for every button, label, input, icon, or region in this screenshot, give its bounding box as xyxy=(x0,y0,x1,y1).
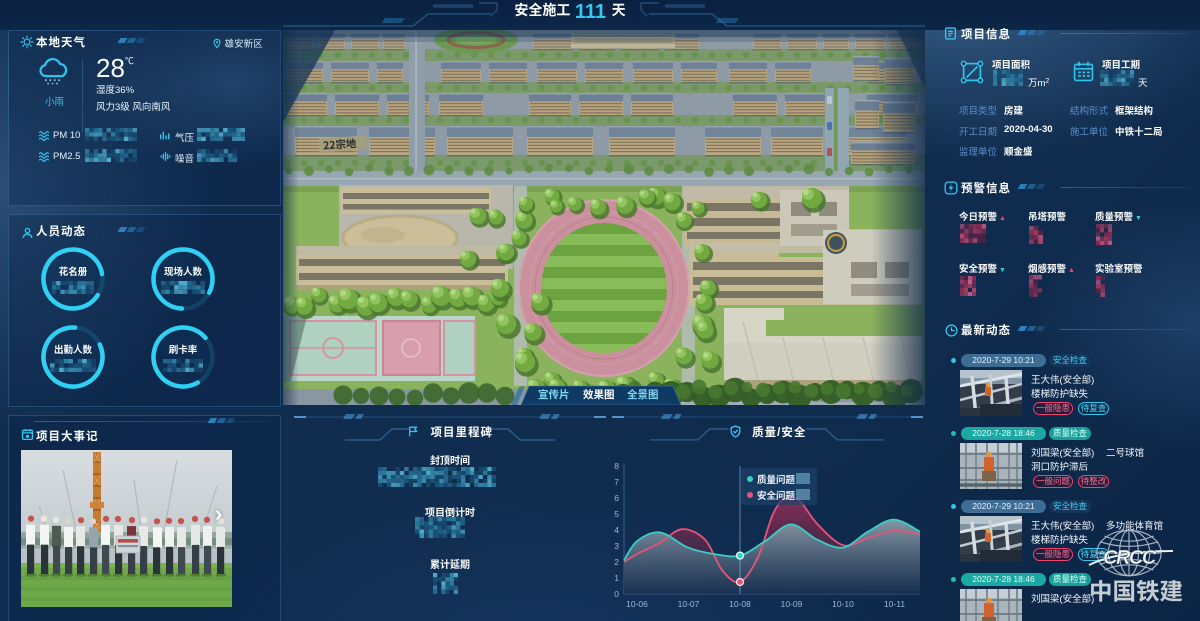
svg-text:4: 4 xyxy=(614,525,619,535)
svg-text:6: 6 xyxy=(614,493,619,503)
svg-text:10-11: 10-11 xyxy=(884,599,905,609)
svg-text:8: 8 xyxy=(614,461,619,471)
svg-text:0: 0 xyxy=(614,589,619,599)
svg-text:安全问题: 安全问题 xyxy=(757,488,796,502)
svg-text:5: 5 xyxy=(614,509,619,519)
svg-text:10-07: 10-07 xyxy=(678,599,700,609)
svg-text:10-06: 10-06 xyxy=(626,599,648,609)
svg-text:3: 3 xyxy=(614,541,619,551)
svg-text:10-08: 10-08 xyxy=(729,599,751,609)
svg-text:全景图: 全景图 xyxy=(627,387,659,402)
svg-text:CRCC: CRCC xyxy=(1103,547,1157,569)
svg-text:1: 1 xyxy=(614,573,619,583)
svg-text:7: 7 xyxy=(614,477,619,487)
svg-text:2: 2 xyxy=(614,557,619,567)
svg-text:宣传片: 宣传片 xyxy=(538,387,570,402)
svg-text:效果图: 效果图 xyxy=(583,387,615,402)
svg-text:10-09: 10-09 xyxy=(781,599,803,609)
svg-text:10-10: 10-10 xyxy=(832,599,854,609)
svg-text:质量问题: 质量问题 xyxy=(757,472,796,486)
